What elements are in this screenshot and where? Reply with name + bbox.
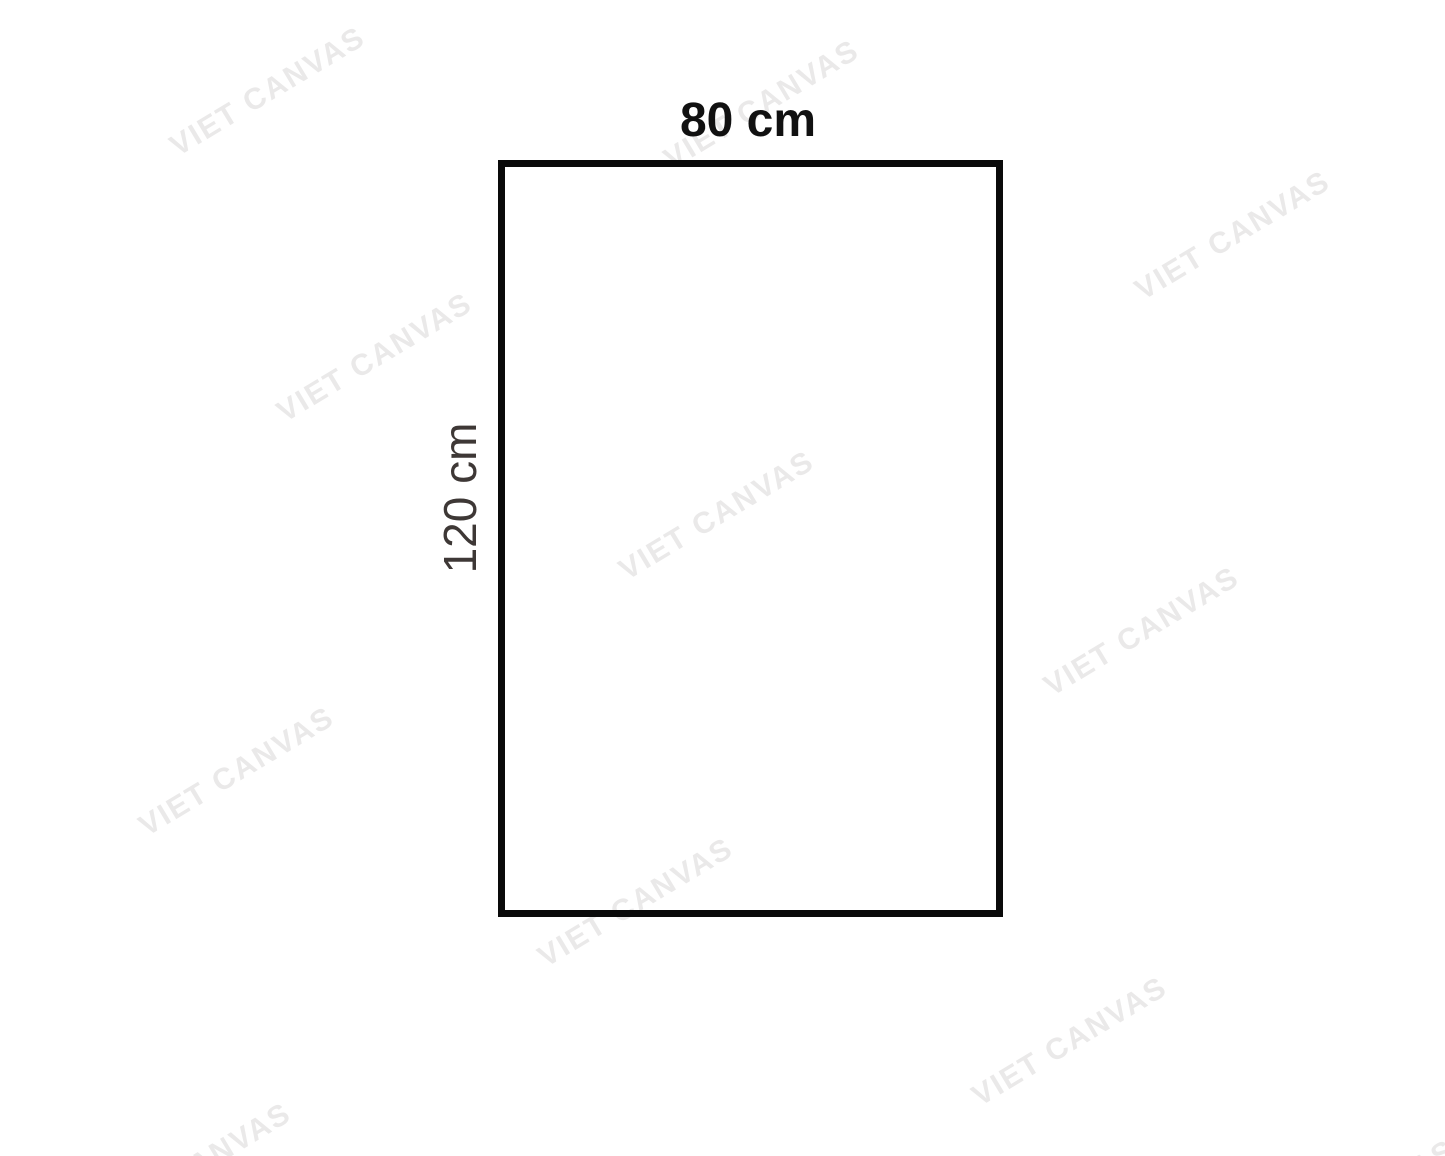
- watermark-text: VIET CANVAS: [164, 20, 371, 163]
- watermark-text: VIET CANVAS: [133, 700, 340, 843]
- watermark-text: VIET CANVAS: [90, 1096, 297, 1156]
- watermark-text: VIET CANVAS: [271, 286, 478, 429]
- width-dimension-label: 80 cm: [680, 97, 816, 145]
- watermark-text: VIET CANVAS: [1038, 560, 1245, 703]
- product-dimension-diagram: VIET CANVASVIET CANVASVIET CANVASVIET CA…: [0, 0, 1445, 1156]
- watermark-text: VIET CANVAS: [966, 970, 1173, 1113]
- watermark-text: VIET CANVAS: [1129, 164, 1336, 307]
- watermark-text: VIET CANVAS: [1254, 1133, 1445, 1156]
- height-dimension-label: 120 cm: [437, 423, 483, 574]
- canvas-outline-rectangle: [498, 160, 1003, 917]
